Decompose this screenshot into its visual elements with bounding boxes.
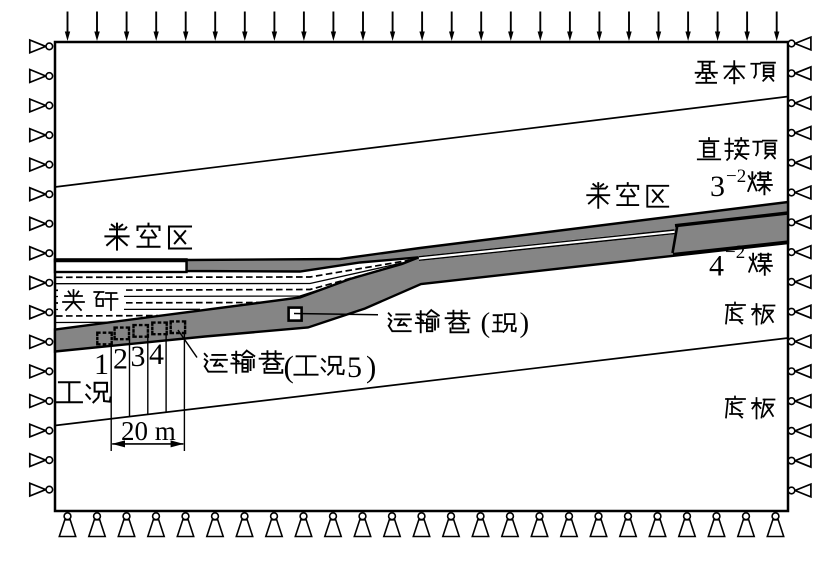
svg-text:3: 3: [710, 170, 725, 203]
svg-text:): ): [520, 307, 530, 339]
svg-text:(: (: [481, 307, 491, 339]
svg-text:4: 4: [709, 250, 724, 283]
svg-text:(: (: [284, 349, 294, 384]
svg-text:20 m: 20 m: [121, 416, 176, 446]
svg-text:): ): [366, 349, 376, 384]
svg-text:3: 3: [131, 340, 146, 373]
svg-text:2: 2: [113, 343, 128, 376]
svg-text:−2: −2: [726, 166, 746, 187]
svg-text:4: 4: [149, 338, 164, 371]
svg-text:−2: −2: [725, 242, 745, 263]
svg-text:5: 5: [347, 351, 362, 384]
svg-text:1: 1: [94, 348, 109, 381]
